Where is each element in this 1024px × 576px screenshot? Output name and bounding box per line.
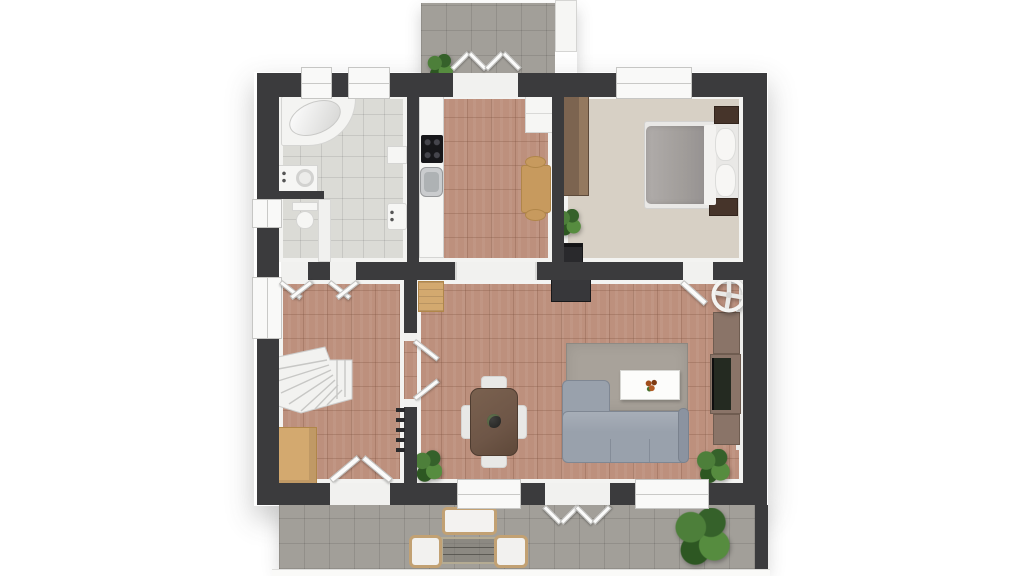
- wall-mid-c: [533, 262, 683, 280]
- front-door-threshold: [330, 483, 390, 505]
- living-plant-left: [414, 450, 442, 484]
- dining-chair-bottom: [481, 454, 507, 468]
- wall-bottom-b: [520, 483, 545, 505]
- wall-bottom-right: [708, 483, 767, 505]
- wall-mid-d: [713, 262, 743, 280]
- bed-pillow-2: [715, 164, 736, 197]
- bathroom-window-1: [301, 67, 332, 99]
- coffee-table-flowers: [643, 377, 659, 393]
- hallway-window: [252, 277, 282, 339]
- kitchen-sink-basin: [424, 172, 439, 192]
- tv-unit-bottom-cabinet: [713, 414, 740, 445]
- living-window-2: [635, 479, 709, 509]
- terrace-door-threshold: [545, 483, 610, 505]
- cooktop: [421, 135, 443, 163]
- wall-mid-b: [356, 262, 455, 280]
- bedroom-door-threshold: [683, 262, 713, 280]
- bed-pillow-1: [715, 128, 736, 161]
- outdoor-glass-table: [441, 537, 497, 564]
- outdoor-chair-left: [409, 535, 442, 568]
- kitchen-living-passage: [455, 262, 537, 280]
- wall-kitchen-bedroom: [552, 95, 564, 262]
- wall-right: [743, 73, 767, 505]
- tv-screen: [712, 358, 731, 410]
- wall-left-upper: [257, 73, 279, 199]
- kitchen-stool-2: [525, 209, 546, 221]
- sofa-main: [562, 411, 689, 463]
- bathroom-door-threshold: [330, 262, 356, 280]
- wc-door-threshold: [281, 262, 308, 280]
- winder-staircase: [275, 343, 353, 417]
- living-window-1: [457, 479, 521, 509]
- wall-wc-stub: [279, 191, 324, 199]
- bathroom-window-2: [348, 67, 390, 99]
- terrace-edge: [272, 569, 770, 576]
- floor-plan-canvas: [0, 0, 1024, 576]
- terrace-right-wall: [755, 505, 768, 569]
- wall-top-kitchen-bed: [518, 73, 617, 97]
- wall-left-mid: [257, 227, 279, 277]
- balcony-planter-box: [555, 0, 577, 52]
- washing-machine-door: [296, 169, 314, 187]
- wc-partition: [318, 199, 331, 262]
- shoe-cabinet: [277, 427, 317, 488]
- tv-unit-top-cabinet: [713, 312, 740, 354]
- bedroom-window: [616, 67, 692, 99]
- wall-bottom-left: [257, 483, 330, 505]
- bed-sheet-fold: [704, 125, 716, 205]
- wall-top-pier: [331, 73, 349, 97]
- nightstand-top: [714, 106, 739, 124]
- sofa-armrest: [678, 408, 689, 463]
- hall-living-doorway-floor: [404, 339, 417, 401]
- wall-left-lower: [257, 339, 279, 505]
- wall-bottom-a: [390, 483, 458, 505]
- wc-window: [252, 199, 282, 228]
- wall-bath-kitchen: [407, 95, 419, 262]
- balcony-door-threshold: [453, 73, 518, 97]
- kitchen-stool-1: [525, 156, 546, 168]
- washing-machine-knobs: [282, 171, 286, 183]
- wall-mid-a: [308, 262, 330, 280]
- outdoor-chair-right: [494, 535, 528, 568]
- bathroom-wall-cabinet: [387, 146, 407, 164]
- wall-top-mid: [389, 73, 453, 97]
- tan-console: [418, 281, 444, 312]
- washbasin-faucet-dots: [390, 210, 394, 222]
- toilet-tank: [292, 202, 318, 211]
- dining-centerpiece: [487, 414, 501, 428]
- toilet-bowl: [296, 211, 314, 229]
- wall-hall-living-upper: [404, 280, 417, 335]
- outdoor-bench: [442, 507, 497, 535]
- bed-duvet: [646, 126, 708, 204]
- kitchen-table: [521, 165, 551, 213]
- wall-bottom-c: [610, 483, 636, 505]
- coat-hooks: [396, 408, 406, 452]
- terrace-large-plant: [674, 508, 730, 568]
